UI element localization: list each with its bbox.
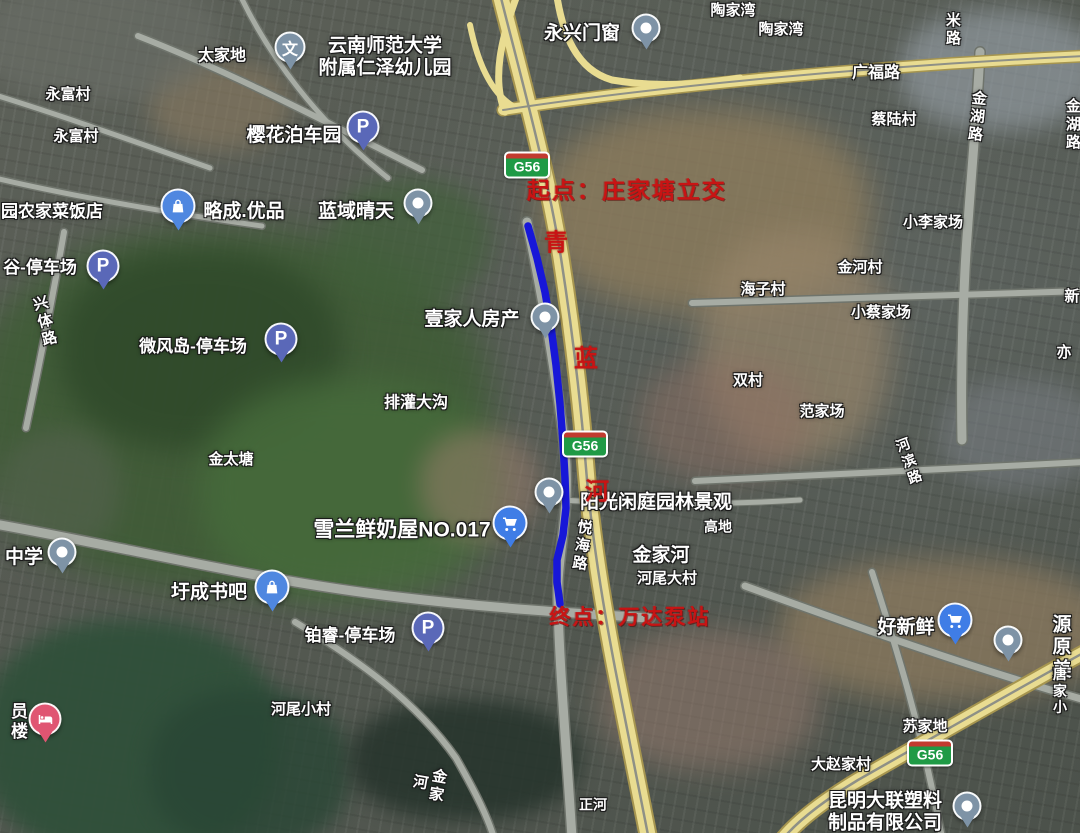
- map-label: 金湖路: [1063, 98, 1080, 152]
- map-label: 圩成书吧: [171, 582, 247, 604]
- map-label: 谷-停车场: [3, 258, 77, 278]
- map-label: 园农家菜饭店: [1, 202, 103, 222]
- satellite-map[interactable]: 起点：庄家塘立交 终点：万达泵站 太家地云南师范大学 附属仁泽幼儿园永富村永富村…: [0, 0, 1080, 833]
- pin-parking[interactable]: P: [265, 323, 298, 356]
- pin-cart[interactable]: [938, 603, 973, 638]
- map-label: 苏家地: [902, 718, 947, 736]
- g56-badge: G56: [907, 740, 953, 767]
- map-label: 双村: [733, 372, 763, 390]
- pin-bag[interactable]: [255, 570, 290, 605]
- map-label: 小李家场: [903, 214, 963, 232]
- pin-cart[interactable]: [493, 506, 528, 541]
- map-label: 中学: [5, 547, 43, 569]
- roads-layer: [0, 0, 1080, 833]
- end-annotation: 终点：万达泵站: [550, 601, 711, 631]
- map-label: 正河: [579, 797, 607, 814]
- route-char: 蓝: [574, 339, 598, 374]
- g56-badge: G56: [562, 431, 608, 458]
- poi-dot-icon: [540, 312, 551, 323]
- cart-icon: [946, 611, 964, 629]
- poi-dot-icon: [57, 547, 68, 558]
- map-label: 永富村: [45, 86, 90, 104]
- poi-dot-icon: [1003, 635, 1014, 646]
- pin-poi[interactable]: [531, 303, 560, 332]
- route-char: 河: [585, 472, 609, 507]
- map-label: 蔡陆村: [871, 111, 916, 129]
- pin-poi[interactable]: [535, 478, 564, 507]
- map-label: 壹家人房产: [424, 309, 519, 331]
- map-label: 陶家湾: [758, 21, 803, 39]
- pin-parking[interactable]: P: [87, 250, 120, 283]
- shopping-bag-icon: [170, 198, 187, 215]
- map-label: 唐家小: [1050, 666, 1070, 716]
- map-label: 广福路: [852, 65, 900, 84]
- map-label: 雪兰鲜奶屋NO.017: [313, 519, 490, 544]
- pin-bag[interactable]: [161, 189, 196, 224]
- parking-icon: P: [275, 328, 288, 350]
- parking-icon: P: [97, 255, 110, 277]
- pin-poi[interactable]: [48, 538, 77, 567]
- bed-icon: [36, 710, 54, 728]
- map-label: 新: [1064, 288, 1079, 306]
- pin-parking[interactable]: P: [412, 612, 445, 645]
- pin-parking[interactable]: P: [347, 111, 380, 144]
- map-label: 昆明大联塑料 制品有限公司: [828, 791, 942, 833]
- map-label: 金河村: [837, 259, 882, 277]
- map-label: 河尾小村: [271, 701, 331, 719]
- pin-poi[interactable]: [404, 189, 433, 218]
- poi-dot-icon: [413, 198, 424, 209]
- map-label: 金太塘: [208, 451, 253, 469]
- map-label: 范家场: [799, 403, 844, 421]
- pin-poi[interactable]: [994, 626, 1023, 655]
- pin-poi[interactable]: [632, 14, 661, 43]
- map-label: 亦: [1056, 344, 1071, 362]
- map-label: 微风岛-停车场: [139, 337, 247, 357]
- map-label: 小蔡家场: [851, 304, 911, 322]
- pin-poi[interactable]: [953, 792, 982, 821]
- poi-dot-icon: [641, 23, 652, 34]
- map-label: 河尾大村: [637, 570, 697, 588]
- map-label: 员楼: [7, 702, 27, 742]
- shopping-bag-icon: [264, 579, 281, 596]
- map-label: 永兴门窗: [544, 23, 620, 45]
- map-label: 米路: [943, 12, 961, 48]
- map-label: 好新鲜: [877, 617, 934, 639]
- map-label: 海子村: [740, 281, 785, 299]
- parking-icon: P: [422, 617, 435, 639]
- map-label: 陶家湾: [710, 2, 755, 20]
- map-label: 蓝域晴天: [318, 201, 394, 223]
- map-label: 樱花泊车园: [246, 125, 341, 147]
- map-label: 云南师范大学 附属仁泽幼儿园: [318, 36, 451, 81]
- poi-dot-icon: [544, 487, 555, 498]
- map-label: 大赵家村: [811, 756, 871, 774]
- map-label: 铂睿-停车场: [305, 626, 396, 646]
- map-label: 金家河: [632, 545, 689, 567]
- school-icon: 文: [282, 35, 298, 59]
- start-annotation: 起点：庄家塘立交: [527, 171, 727, 205]
- pin-school[interactable]: 文: [275, 32, 306, 63]
- map-label: 略成.优品: [203, 201, 284, 223]
- route-char: 青: [544, 223, 568, 258]
- map-label: 排灌大沟: [384, 395, 448, 414]
- pin-bed[interactable]: [29, 703, 62, 736]
- parking-icon: P: [357, 116, 370, 138]
- cart-icon: [501, 514, 519, 532]
- poi-dot-icon: [962, 801, 973, 812]
- map-label: 永富村: [53, 128, 98, 146]
- map-label: 太家地: [198, 48, 246, 67]
- map-label: 高地: [704, 519, 732, 536]
